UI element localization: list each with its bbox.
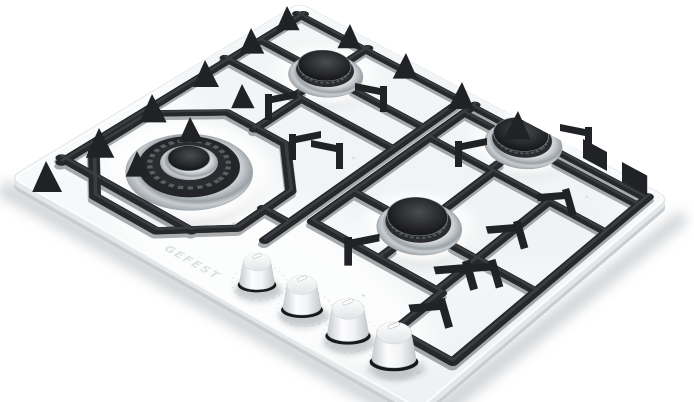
- grate-finger-icon: [86, 128, 115, 158]
- grate-finger-icon: [231, 84, 254, 108]
- burner-knob-4[interactable]: [366, 322, 426, 380]
- pan-support-icon: [355, 83, 387, 112]
- grate-finger-icon: [139, 94, 166, 122]
- pan-support-icon: [560, 124, 592, 153]
- grate-finger-icon: [193, 60, 219, 87]
- pan-support-icon: [433, 256, 478, 298]
- grate-finger-icon: [276, 6, 299, 30]
- grate-finger-icon: [32, 161, 62, 192]
- product-photo-gas-hob: GEFEST: [0, 0, 694, 402]
- pan-support-fingers: [32, 6, 647, 337]
- burner-knob-3[interactable]: [322, 298, 378, 352]
- pan-support-icon: [311, 140, 343, 169]
- burner-knob-2[interactable]: [278, 275, 330, 325]
- grate-finger-icon: [503, 111, 530, 139]
- pan-support-icon: [265, 91, 297, 120]
- grate-finger-icon: [337, 24, 360, 48]
- grate-finger-icon: [126, 151, 151, 177]
- grate-foot-icon: [622, 162, 647, 196]
- pan-support-icon: [486, 217, 529, 257]
- grate-finger-icon: [448, 82, 474, 109]
- pan-support-icon: [344, 234, 379, 266]
- pan-support-icon: [455, 138, 487, 167]
- burner-knob-1[interactable]: [235, 253, 283, 299]
- grate-finger-icon: [240, 28, 265, 54]
- control-knobs: [235, 253, 427, 379]
- grate-finger-icon: [393, 53, 418, 79]
- pan-support-icon: [408, 294, 453, 336]
- grate-finger-icon: [179, 117, 203, 142]
- raised-parts-overlay: [0, 0, 694, 402]
- pan-support-icon: [536, 185, 577, 224]
